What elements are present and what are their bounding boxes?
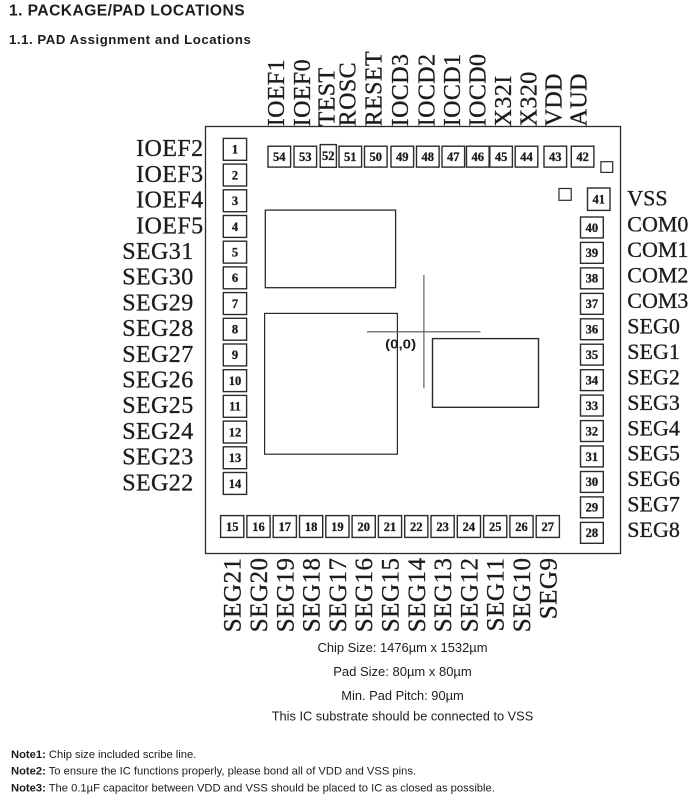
- svg-text:This IC substrate should be co: This IC substrate should be connected to…: [272, 709, 534, 724]
- svg-text:IOCD2: IOCD2: [414, 54, 440, 127]
- svg-text:COM2: COM2: [627, 263, 688, 288]
- svg-text:25: 25: [489, 520, 502, 534]
- svg-text:23: 23: [436, 520, 449, 534]
- svg-text:28: 28: [586, 526, 599, 540]
- svg-text:SEG3: SEG3: [627, 390, 680, 415]
- svg-text:SEG12: SEG12: [456, 558, 483, 633]
- svg-text:16: 16: [252, 520, 265, 534]
- svg-text:53: 53: [299, 150, 312, 164]
- svg-text:SEG0: SEG0: [627, 314, 680, 339]
- svg-text:SEG22: SEG22: [122, 470, 193, 496]
- svg-text:22: 22: [410, 520, 423, 534]
- svg-text:44: 44: [520, 150, 533, 164]
- svg-text:20: 20: [357, 520, 370, 534]
- svg-text:VDD: VDD: [541, 73, 567, 126]
- svg-text:14: 14: [229, 477, 242, 491]
- svg-text:SEG2: SEG2: [627, 364, 680, 389]
- svg-text:SEG15: SEG15: [378, 558, 405, 633]
- svg-text:IOEF0: IOEF0: [290, 59, 316, 126]
- svg-text:SEG19: SEG19: [272, 558, 299, 633]
- svg-text:SEG17: SEG17: [325, 558, 352, 633]
- svg-text:19: 19: [331, 520, 344, 534]
- svg-text:12: 12: [229, 425, 242, 439]
- svg-text:48: 48: [422, 150, 435, 164]
- svg-text:SEG14: SEG14: [404, 558, 431, 633]
- svg-text:SEG23: SEG23: [122, 445, 193, 471]
- svg-text:AUD: AUD: [567, 73, 593, 126]
- svg-text:33: 33: [586, 399, 599, 413]
- svg-text:SEG29: SEG29: [122, 290, 193, 316]
- svg-text:29: 29: [586, 501, 599, 515]
- svg-text:40: 40: [586, 221, 599, 235]
- svg-text:36: 36: [586, 323, 599, 337]
- svg-text:SEG9: SEG9: [535, 558, 562, 620]
- svg-text:7: 7: [232, 297, 238, 311]
- svg-text:1: 1: [232, 143, 238, 157]
- svg-text:Min. Pad Pitch: 90µm: Min. Pad Pitch: 90µm: [341, 688, 464, 703]
- svg-text:35: 35: [586, 348, 599, 362]
- svg-text:52: 52: [322, 149, 335, 163]
- svg-text:IOEF4: IOEF4: [136, 188, 203, 214]
- svg-text:3: 3: [232, 194, 238, 208]
- svg-text:27: 27: [542, 520, 555, 534]
- svg-text:Pad Size: 80µm x 80µm: Pad Size: 80µm x 80µm: [333, 664, 472, 679]
- svg-text:45: 45: [495, 150, 508, 164]
- svg-text:SEG26: SEG26: [122, 368, 193, 394]
- svg-text:SEG24: SEG24: [122, 419, 193, 445]
- svg-text:47: 47: [447, 150, 460, 164]
- svg-text:SEG18: SEG18: [299, 558, 326, 633]
- svg-text:ROSC: ROSC: [336, 62, 362, 126]
- svg-text:1. PACKAGE/PAD LOCATIONS: 1. PACKAGE/PAD LOCATIONS: [9, 3, 245, 20]
- svg-text:X320: X320: [516, 71, 542, 126]
- svg-text:SEG16: SEG16: [351, 558, 378, 633]
- svg-text:17: 17: [279, 520, 292, 534]
- svg-text:IOCD3: IOCD3: [388, 54, 414, 127]
- svg-text:SEG7: SEG7: [627, 492, 680, 517]
- svg-text:SEG31: SEG31: [122, 239, 193, 265]
- svg-text:SEG5: SEG5: [627, 441, 680, 466]
- svg-text:SEG30: SEG30: [122, 265, 193, 291]
- svg-text:51: 51: [344, 150, 357, 164]
- svg-text:6: 6: [232, 271, 238, 285]
- svg-text:31: 31: [586, 450, 599, 464]
- svg-text:Note1: Chip size included scri: Note1: Chip size included scribe line.: [11, 749, 196, 761]
- svg-text:Note2: To ensure the IC functi: Note2: To ensure the IC functions proper…: [11, 766, 416, 778]
- svg-text:39: 39: [586, 246, 599, 260]
- svg-text:VSS: VSS: [627, 185, 667, 210]
- svg-text:SEG6: SEG6: [627, 466, 680, 491]
- svg-text:43: 43: [549, 150, 562, 164]
- svg-text:SEG21: SEG21: [220, 558, 247, 633]
- svg-text:IOEF1: IOEF1: [264, 59, 290, 126]
- svg-text:9: 9: [232, 348, 238, 362]
- svg-text:RESET: RESET: [362, 51, 388, 126]
- svg-text:32: 32: [586, 424, 599, 438]
- svg-text:SEG8: SEG8: [627, 517, 680, 542]
- svg-text:8: 8: [232, 323, 238, 337]
- svg-text:46: 46: [472, 150, 485, 164]
- svg-text:IOCD0: IOCD0: [466, 54, 492, 127]
- svg-text:SEG11: SEG11: [483, 558, 510, 632]
- svg-text:21: 21: [384, 520, 397, 534]
- svg-text:SEG25: SEG25: [122, 393, 193, 419]
- svg-text:15: 15: [226, 520, 239, 534]
- svg-text:SEG4: SEG4: [627, 415, 680, 440]
- svg-text:37: 37: [586, 297, 599, 311]
- svg-text:42: 42: [576, 150, 589, 164]
- svg-text:54: 54: [273, 150, 286, 164]
- svg-text:1.1. PAD Assignment and Locati: 1.1. PAD Assignment and Locations: [9, 32, 251, 47]
- svg-text:13: 13: [229, 451, 242, 465]
- svg-text:4: 4: [232, 220, 239, 234]
- svg-text:18: 18: [305, 520, 318, 534]
- svg-text:5: 5: [232, 245, 238, 259]
- svg-text:50: 50: [370, 150, 383, 164]
- svg-text:26: 26: [515, 520, 528, 534]
- svg-text:COM3: COM3: [627, 288, 688, 313]
- svg-text:IOEF3: IOEF3: [136, 162, 203, 188]
- svg-text:34: 34: [586, 373, 599, 387]
- svg-text:IOEF2: IOEF2: [136, 136, 203, 162]
- svg-text:24: 24: [463, 520, 476, 534]
- svg-text:38: 38: [586, 272, 599, 286]
- svg-text:10: 10: [229, 374, 242, 388]
- svg-text:Note3: The 0.1µF capacitor bet: Note3: The 0.1µF capacitor between VDD a…: [11, 782, 495, 794]
- svg-text:SEG28: SEG28: [122, 316, 193, 342]
- svg-text:11: 11: [229, 400, 241, 414]
- svg-text:SEG20: SEG20: [246, 558, 273, 633]
- svg-text:COM0: COM0: [627, 212, 688, 237]
- svg-text:Chip Size: 1476µm x 1532µm: Chip Size: 1476µm x 1532µm: [318, 640, 488, 655]
- svg-text:SEG13: SEG13: [430, 558, 457, 633]
- svg-text:30: 30: [586, 475, 599, 489]
- svg-text:IOCD1: IOCD1: [440, 54, 466, 127]
- svg-text:2: 2: [232, 168, 238, 182]
- svg-text:COM1: COM1: [627, 237, 688, 262]
- svg-text:49: 49: [396, 150, 409, 164]
- svg-text:SEG1: SEG1: [627, 339, 680, 364]
- svg-text:IOEF5: IOEF5: [136, 213, 203, 239]
- svg-text:SEG10: SEG10: [509, 558, 536, 633]
- svg-text:(0,0): (0,0): [385, 338, 416, 352]
- svg-text:41: 41: [593, 193, 606, 207]
- svg-text:SEG27: SEG27: [122, 342, 193, 368]
- svg-text:X32I: X32I: [491, 75, 517, 126]
